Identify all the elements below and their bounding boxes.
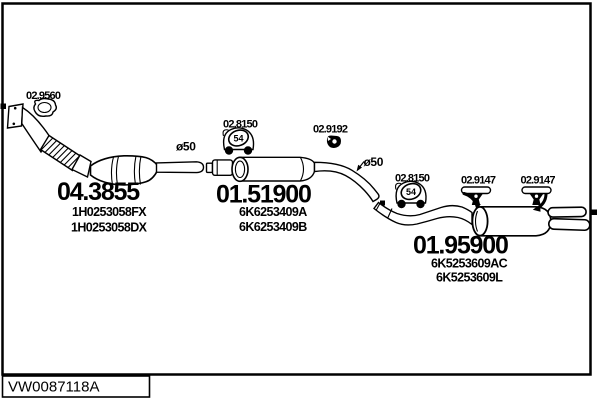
part-number-clamp-front[interactable]: 02.8150 xyxy=(223,119,258,131)
oe-ref-mid-2: 6K6253409B xyxy=(239,220,307,234)
oe-ref-cat-2: 1H0253058DX xyxy=(71,221,148,235)
oe-ref-mid-1: 6K6253409A xyxy=(239,205,307,219)
part-number-clamp-rear[interactable]: 02.8150 xyxy=(395,173,430,185)
left-mount-marker xyxy=(1,104,7,110)
part-number-hanger-rear[interactable]: 02.9147 xyxy=(521,175,556,187)
clamp-size-rear: 54 xyxy=(406,187,416,197)
part-number-front-pipe-cat[interactable]: 04.3855 xyxy=(57,178,140,206)
exhaust-parts-diagram: 02.9560 04.3855 1H0253058FX 1H0253058DX … xyxy=(0,0,600,400)
exhaust-diagram-page: 02.9560 04.3855 1H0253058FX 1H0253058DX … xyxy=(0,0,600,400)
oe-ref-rear-2: 6K5253609L xyxy=(436,271,503,285)
tailpipe-tips xyxy=(548,207,590,230)
rubber-mount-icon xyxy=(327,136,341,148)
part-number-gasket[interactable]: 02.9560 xyxy=(26,90,61,102)
front-flange xyxy=(8,104,24,128)
part-number-rubber-mount[interactable]: 02.9192 xyxy=(313,124,348,136)
right-mount-marker xyxy=(592,210,598,216)
diameter-annotation-front: ø50 xyxy=(176,140,196,154)
drawing-code-box: VW0087118A xyxy=(3,376,150,397)
oe-ref-cat-1: 1H0253058FX xyxy=(72,205,147,219)
part-number-rear-silencer[interactable]: 01.95900 xyxy=(413,232,508,260)
oe-ref-rear-1: 6K5253609AC xyxy=(431,257,508,271)
clamp-size-front: 54 xyxy=(233,134,243,144)
drawing-code: VW0087118A xyxy=(8,379,99,396)
diameter-annotation-rear: ø50 xyxy=(364,155,384,169)
part-number-hanger-front[interactable]: 02.9147 xyxy=(461,175,496,187)
